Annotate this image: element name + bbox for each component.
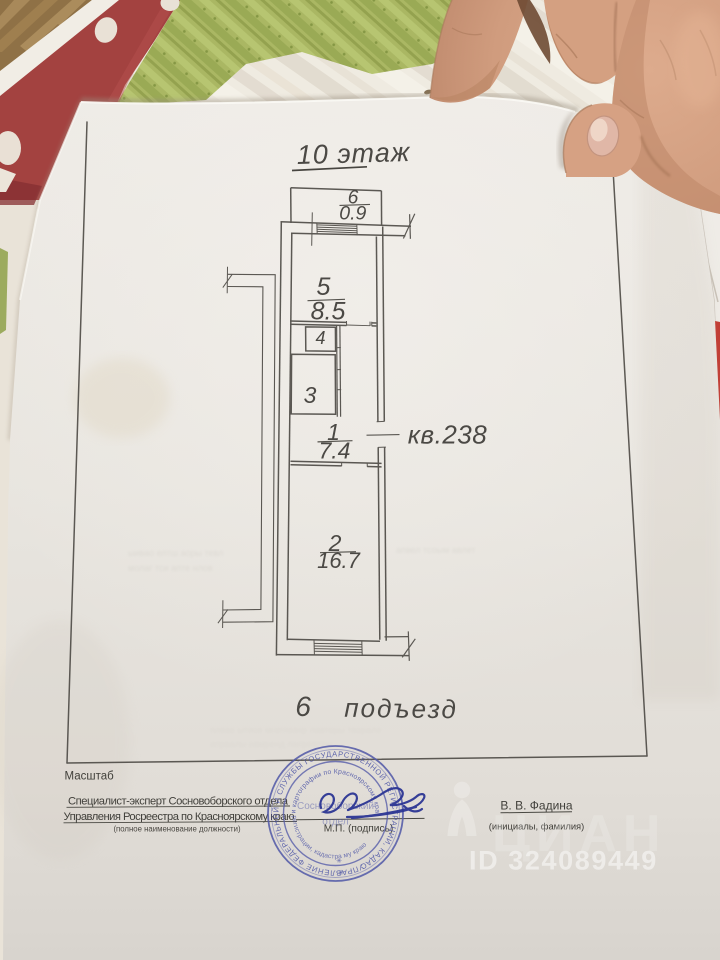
svg-text:ID 324089449: ID 324089449 xyxy=(469,846,658,876)
svg-text:Масштаб: Масштаб xyxy=(65,771,115,783)
svg-text:ыивао елтш аоры тевл: ыивао елтш аоры тевл xyxy=(128,548,223,558)
svg-text:подъезд: подъезд xyxy=(344,693,458,724)
svg-text:плвао ытисе мгатпознр лавторы: плвао ытисе мгатпознр лавторы творало xyxy=(210,725,382,735)
svg-text:Специалист-эксперт Сосновоборс: Специалист-эксперт Сосновоборского отдел… xyxy=(68,796,289,808)
svg-text:16.7: 16.7 xyxy=(317,548,361,573)
svg-text:кв.238: кв.238 xyxy=(408,420,487,450)
svg-text:(полное наименование должности: (полное наименование должности) xyxy=(113,825,241,834)
svg-text:апрвалы овмренд лапровтаы: апрвалы овмренд лапровтаы xyxy=(210,739,333,749)
svg-text:3: 3 xyxy=(304,382,317,408)
svg-text:4: 4 xyxy=(315,328,325,348)
svg-text:отдел: отдел xyxy=(322,817,349,828)
svg-text:8.5: 8.5 xyxy=(311,298,346,326)
svg-text:✳: ✳ xyxy=(338,869,344,877)
svg-text:молаг тси апте нлов: молаг тси апте нлов xyxy=(128,563,213,573)
svg-text:0.9: 0.9 xyxy=(339,203,366,225)
svg-text:✳: ✳ xyxy=(336,857,342,865)
svg-text:апвел тсоым авлет: апвел тсоым авлет xyxy=(396,545,475,555)
svg-text:6: 6 xyxy=(295,691,311,722)
svg-text:10 этаж: 10 этаж xyxy=(296,137,411,170)
svg-text:7.4: 7.4 xyxy=(319,438,351,464)
